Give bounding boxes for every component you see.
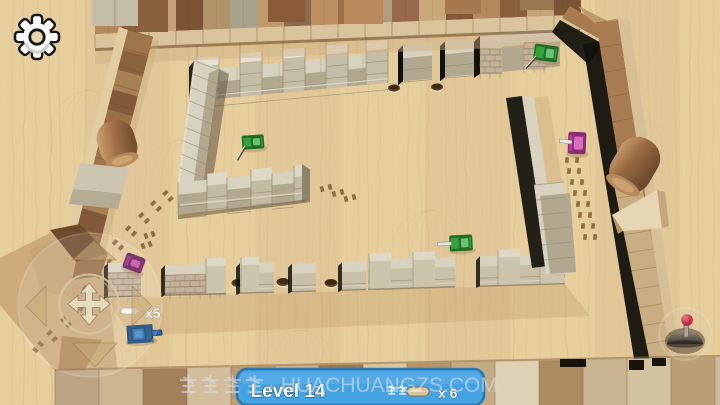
svg-text:· HUACHUANGZS.COM: · HUACHUANGZS.COM [268, 374, 498, 397]
